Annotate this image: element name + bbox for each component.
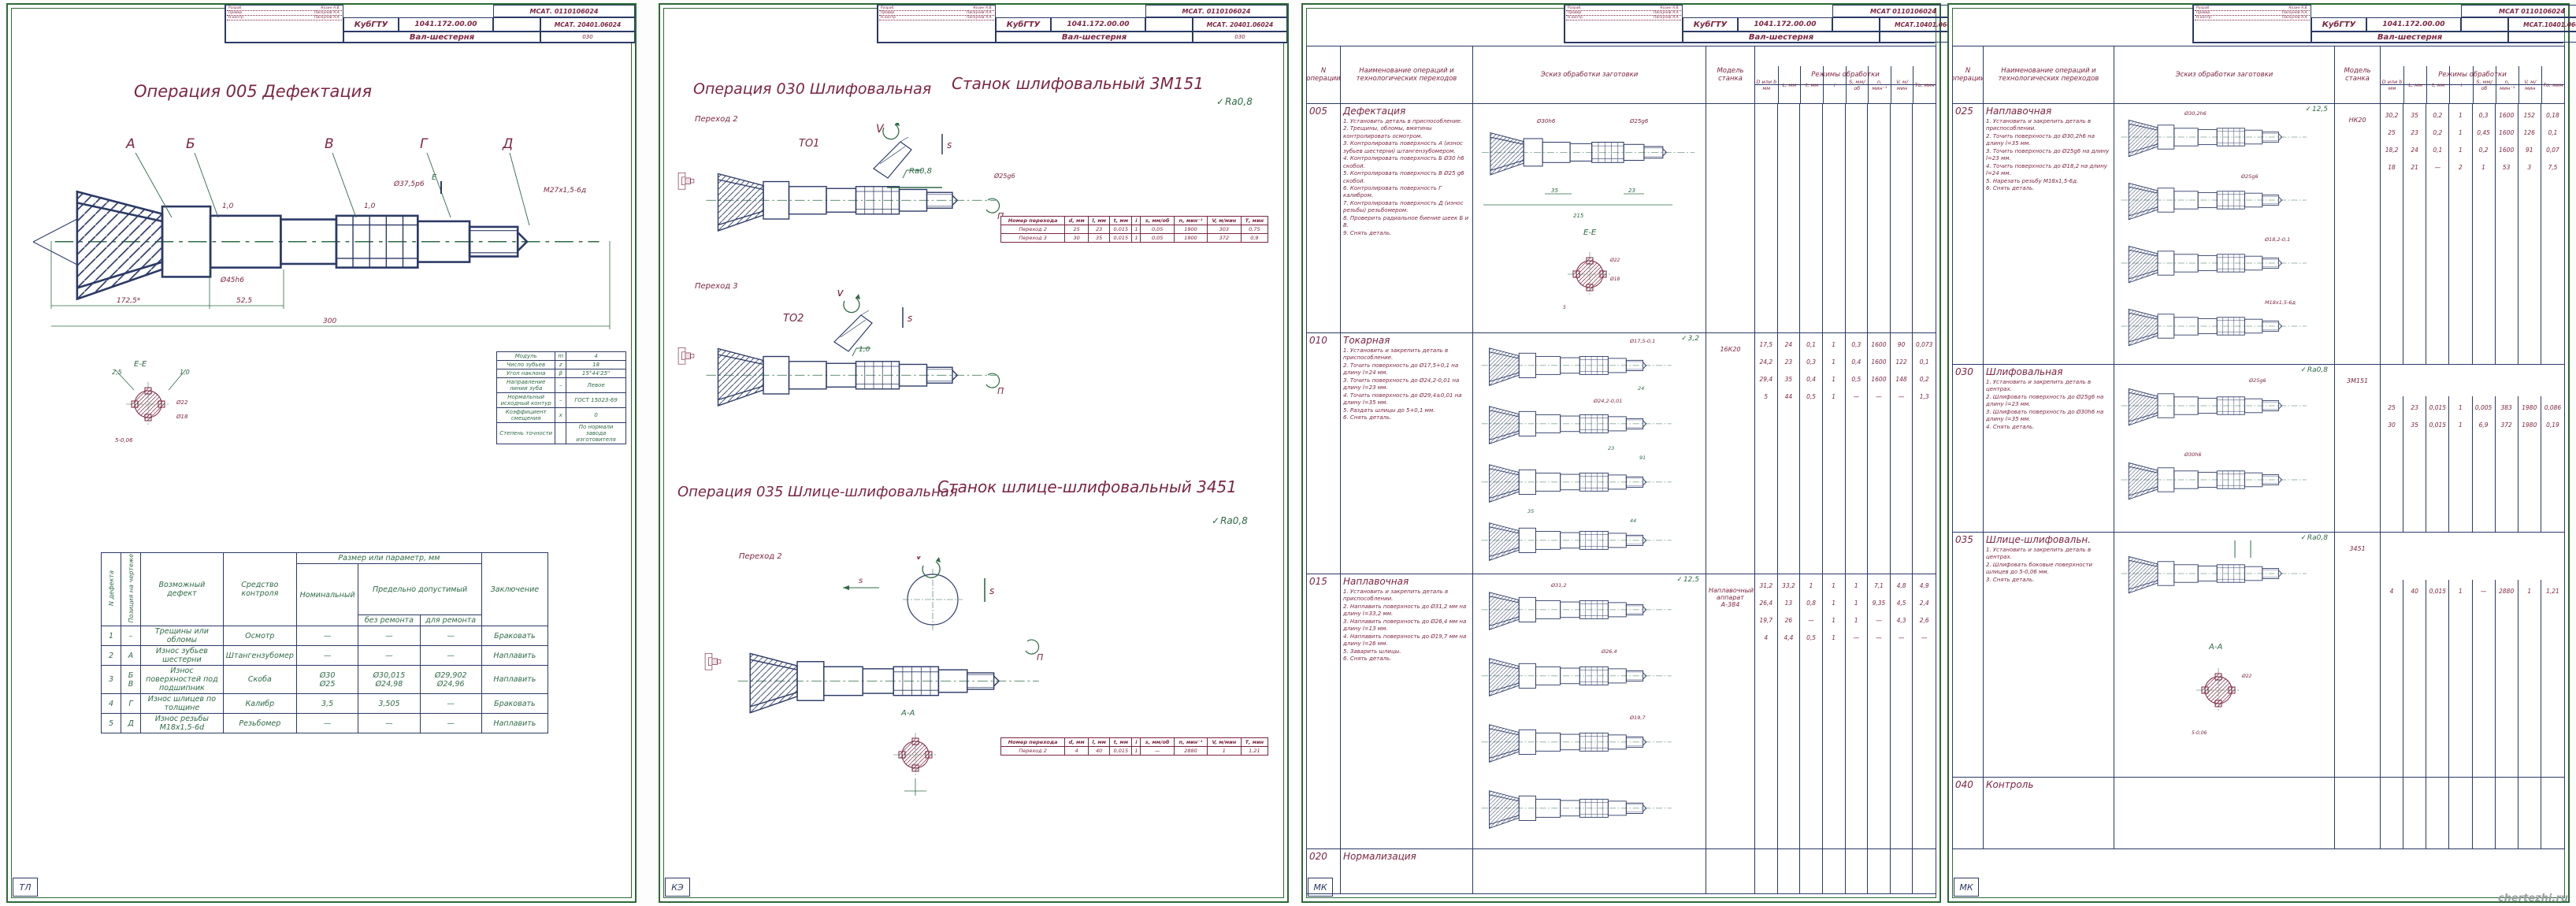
- mode-column: [1755, 849, 1778, 893]
- svg-text:Ø30h6: Ø30h6: [2184, 451, 2202, 458]
- table-row: Переход 225230,01510,0519003030,75: [1001, 225, 1268, 234]
- op-machine-model: [2335, 778, 2381, 848]
- table-cell: Резьбомер: [223, 714, 296, 733]
- table-cell: Штангензубомер: [223, 646, 296, 666]
- sheet3-title-block: Разраб.Козин А.В. Провер.Пискунов А.А. Н…: [1564, 5, 1935, 43]
- op-number: 030: [1952, 365, 1984, 532]
- mode-column: [2518, 778, 2541, 848]
- mode-column: —: [2473, 580, 2496, 777]
- mode-column: 33,213264,4: [1778, 574, 1801, 848]
- svg-text:44: 44: [1630, 518, 1636, 524]
- operation-005-title: Операция 005 Дефектация: [134, 82, 372, 101]
- mode-value: 1: [1823, 617, 1845, 634]
- drawing-number: 1041.172.00.00: [2366, 17, 2461, 32]
- table-cell: Износ зубьев шестерни: [141, 646, 224, 666]
- table-row: Модульm4: [497, 352, 626, 361]
- signature-grid: Разраб.Козин А.В. Провер.Пискунов А.А. Н…: [225, 5, 343, 43]
- section-ee-label: Е-Е: [134, 360, 147, 369]
- route-table-header: N операции Наименование операций и техно…: [1952, 46, 2565, 104]
- mode-value: 31,2: [1755, 582, 1777, 600]
- mode-column: 1: [2518, 580, 2541, 777]
- mode-value: 30,2: [2381, 112, 2403, 129]
- table-cell: 0,015: [1110, 234, 1132, 243]
- page-code: 030: [1193, 32, 1287, 43]
- op-description: Наплавочная 1. Установить и закрепить де…: [1984, 104, 2114, 364]
- section-aa-label: А-А: [901, 709, 915, 718]
- mode-value: 7,5: [2541, 164, 2564, 181]
- machine-030-title: Станок шлифовальный 3М151: [952, 74, 1204, 93]
- table-cell: Трещины или обломы: [141, 626, 224, 646]
- table-cell: 25: [1065, 225, 1089, 234]
- mode-value: 126: [2518, 129, 2541, 147]
- op-machine-model: [1706, 849, 1755, 893]
- route-row-005: 005 Дефектация 1. Установить деталь в пр…: [1306, 104, 1936, 333]
- route-card-2: Разраб.Козин А.В. Провер.Пискунов А.А. Н…: [1947, 3, 2570, 903]
- mode-column: 1,21: [2541, 580, 2564, 777]
- mode-value: 4: [1755, 634, 1777, 652]
- regimes-table-035: Номер переходаd, мм l, ммt, мм is, мм/об…: [1000, 737, 1268, 756]
- mode-value: 2,6: [1913, 617, 1936, 634]
- op-number: 040: [1952, 778, 1984, 848]
- mode-value: 1600: [2496, 112, 2518, 129]
- mode-value: 33,2: [1778, 582, 1800, 600]
- op-sketch: Ra0,8 Ø25g6 Ø30h6: [2114, 365, 2335, 532]
- mode-value: 40: [2403, 588, 2426, 605]
- table-cell: Нормальный исходный контур: [497, 393, 555, 408]
- table-row: Переход 24400,0151—288011,21: [1001, 747, 1268, 756]
- mode-value: 1980: [2518, 404, 2541, 421]
- op-modes: 253023350,0150,015110,0056,9383372198019…: [2381, 365, 2565, 532]
- mode-value: 19,7: [1755, 617, 1777, 634]
- route-row-020: 020 Нормализация: [1306, 849, 1936, 894]
- mode-value: 1: [1823, 358, 1845, 376]
- mode-value: 1,3: [1913, 393, 1936, 410]
- mode-column: [1778, 104, 1801, 332]
- svg-text:ТО2: ТО2: [783, 313, 804, 325]
- mode-value: 24: [2403, 147, 2426, 164]
- svg-text:А: А: [125, 136, 135, 152]
- op-machine-model: 3451: [2335, 533, 2381, 777]
- mode-value: 35: [2403, 421, 2426, 439]
- mode-value: —: [1891, 634, 1913, 652]
- table-cell: Осмотр: [223, 626, 296, 646]
- mode-column: 1111: [1823, 333, 1846, 574]
- table-row: Коэффициент смещенияx0: [497, 408, 626, 423]
- table-cell: Переход 2: [1001, 747, 1065, 756]
- mode-value: 1: [1823, 341, 1845, 358]
- mode-value: —: [1846, 393, 1868, 410]
- table-row: 5ДИзнос резьбы М18х1,5-6dРезьбомер———Нап…: [102, 714, 548, 733]
- mode-value: 1600: [2496, 129, 2518, 147]
- mode-column: 31,226,419,74: [1755, 574, 1778, 848]
- mode-column: [2449, 778, 2472, 848]
- operation-030-title: Операция 030 Шлифовальная: [693, 80, 931, 98]
- table-cell: —: [420, 694, 481, 714]
- mode-value: 0,45: [2473, 129, 2495, 147]
- svg-text:Ø22: Ø22: [2241, 674, 2252, 679]
- regimes-table-030: Номер переходаd, мм l, ммt, мм is, мм/об…: [1000, 216, 1268, 243]
- svg-text:s: s: [989, 585, 994, 596]
- op-machine-model: Наплавочный аппарат А-384: [1706, 574, 1755, 848]
- svg-text:Ø25g6: Ø25g6: [993, 172, 1015, 180]
- table-cell: —: [420, 646, 481, 666]
- mode-value: 90: [1891, 341, 1913, 358]
- mode-column: 19801980: [2518, 396, 2541, 532]
- op-sketch: Ra0,8 А-А Ø22 5-0,06: [2114, 533, 2335, 777]
- mode-column: 2530: [2381, 396, 2403, 532]
- table-cell: Наплавить: [481, 646, 547, 666]
- mode-column: 0,20,20,1—: [2426, 104, 2449, 364]
- table-cell: ГОСТ 15023-69: [566, 393, 626, 408]
- route-table-1: N операции Наименование операций и техно…: [1306, 46, 1936, 894]
- table-cell: Браковать: [481, 626, 547, 646]
- table-cell: Коэффициент смещения: [497, 408, 555, 423]
- svg-text:35: 35: [1551, 188, 1558, 194]
- mode-column: [2541, 778, 2564, 848]
- mode-value: 24,2: [1755, 358, 1777, 376]
- svg-text:П: П: [997, 386, 1004, 396]
- machine-035-title: Станок шлице-шлифовальный 3451: [937, 477, 1237, 496]
- op-machine-model: 16К20: [1706, 333, 1755, 574]
- mode-value: 0,3: [1846, 341, 1868, 358]
- op-sketch: [2114, 778, 2335, 848]
- mode-column: 0,180,10,077,5: [2541, 104, 2564, 364]
- gear-params-table: Модульm4Число зубьевz18Угол наклонаβ15°4…: [496, 351, 626, 444]
- table-cell: Наплавить: [481, 714, 547, 733]
- svg-text:215: 215: [1573, 213, 1584, 219]
- svg-text:Ø18: Ø18: [176, 414, 188, 420]
- defects-table: N дефекта Позиция на чертеже Возможный д…: [101, 552, 548, 733]
- mode-value: 18,2: [2381, 147, 2403, 164]
- doc-type-code: МК: [1308, 878, 1333, 897]
- svg-text:Ø25g6: Ø25g6: [1629, 118, 1649, 124]
- svg-text:Ø22: Ø22: [1609, 258, 1620, 263]
- svg-text:1,0: 1,0: [364, 202, 376, 210]
- mode-column: 160016001600—: [1868, 333, 1891, 574]
- op-machine-model: НК20: [2335, 104, 2381, 364]
- svg-text:23: 23: [1608, 445, 1614, 451]
- col-op: N операции: [1952, 46, 1984, 103]
- mode-value: 1600: [1868, 376, 1890, 393]
- mode-value: 0,18: [2541, 112, 2564, 129]
- table-cell: Браковать: [481, 694, 547, 714]
- route-row-035: 035 Шлице-шлифовальн. 1. Установить и за…: [1952, 533, 2565, 778]
- mode-value: 1: [1823, 376, 1845, 393]
- table-cell: 1: [1132, 234, 1141, 243]
- mode-column: 111—: [1846, 574, 1869, 848]
- mode-value: 0,2: [1913, 376, 1936, 393]
- op-sketch: 12,5 Ø31,2 Ø26,4 Ø19,7: [1473, 574, 1706, 848]
- table-cell: Направление линии зуба: [497, 378, 555, 393]
- op-sketch: 3,2 Ø17,5-0,1 Ø24,2-0,01 24 23 91 35: [1473, 333, 1706, 574]
- col-modes: Режимы обработки D или b мм L, ммt, мм i…: [1755, 46, 1936, 103]
- mode-value: 4,3: [1891, 617, 1913, 634]
- organization: КубГТУ: [1683, 17, 1738, 32]
- mode-column: 10,8—0,5: [1800, 574, 1823, 848]
- table-row: 1–Трещины или обломыОсмотр———Браковать: [102, 626, 548, 646]
- drawing-set-canvas: Разраб.Козин А.В. Провер.Пискунов А.А. Н…: [0, 0, 2576, 906]
- table-cell: —: [358, 714, 420, 733]
- svg-text:s: s: [908, 313, 912, 324]
- mode-column: [1913, 849, 1936, 893]
- svg-text:23: 23: [1628, 188, 1635, 194]
- mode-value: 1: [2449, 112, 2471, 129]
- mode-column: [1823, 104, 1846, 332]
- table-cell: 1: [1132, 747, 1141, 756]
- op-description: Шлифовальная 1. Установить и закрепить д…: [1984, 365, 2114, 532]
- doc-type-code: МК: [1954, 878, 1979, 897]
- mode-value: 0,1: [2426, 147, 2448, 164]
- table-cell: —: [358, 646, 420, 666]
- table-cell: 3: [102, 666, 121, 694]
- mode-value: 1: [2449, 404, 2471, 421]
- svg-text:Ø18,2-0,1: Ø18,2-0,1: [2264, 236, 2290, 243]
- signature-grid: Разраб.Козин А.В. Провер.Пискунов А.А. Н…: [878, 5, 996, 43]
- mode-column: 4: [2381, 580, 2403, 777]
- op-description: Дефектация 1. Установить деталь в приспо…: [1341, 104, 1473, 332]
- shaft-drawing: А Б В Г Д 1,0 1,0 Ø37,5р6 Ø45h6 М27х1,5-…: [24, 99, 622, 336]
- mode-value: 25: [2381, 404, 2403, 421]
- route-row-040: 040 Контроль: [1952, 778, 2565, 849]
- op-description: Наплавочная 1. Установить и закрепить де…: [1341, 574, 1473, 848]
- mode-value: 1: [1823, 393, 1845, 410]
- mode-column: [1800, 849, 1823, 893]
- mode-value: 17,5: [1755, 341, 1777, 358]
- table-cell: —: [358, 626, 420, 646]
- route-card-1: Разраб.Козин А.В. Провер.Пискунов А.А. Н…: [1301, 3, 1941, 903]
- mode-value: 44: [1778, 393, 1800, 410]
- table-cell: 372: [1207, 234, 1241, 243]
- svg-text:Ø19,7: Ø19,7: [1629, 715, 1646, 721]
- route-row-025: 025 Наплавочная 1. Установить и закрепит…: [1952, 104, 2565, 365]
- mode-column: 1111: [1823, 574, 1846, 848]
- mode-column: 4,84,54,3—: [1891, 574, 1913, 848]
- operation-035-title: Операция 035 Шлице-шлифовальная: [677, 484, 958, 500]
- mode-column: 0,0150,015: [2426, 396, 2449, 532]
- mode-value: 1600: [2496, 147, 2518, 164]
- mode-column: 0,30,450,21: [2473, 104, 2496, 364]
- mode-value: 0,5: [1800, 393, 1822, 410]
- mode-value: 25: [2381, 129, 2403, 147]
- col-modes: Режимы обработки D или b мм L, ммt, мм i…: [2381, 46, 2565, 103]
- table-cell: Модуль: [497, 352, 555, 361]
- table-cell: Наплавить: [481, 666, 547, 694]
- op-machine-model: 3М151: [2335, 365, 2381, 532]
- mode-column: [1913, 104, 1936, 332]
- table-cell: А: [121, 646, 141, 666]
- table-cell: 2880: [1175, 747, 1208, 756]
- mode-column: [2381, 778, 2403, 848]
- mode-column: [1823, 849, 1846, 893]
- mode-column: 0,015: [2426, 580, 2449, 777]
- table-cell: m: [555, 352, 566, 361]
- op-description: Нормализация: [1341, 849, 1473, 893]
- table-cell: 1900: [1175, 225, 1208, 234]
- mode-value: 1,21: [2541, 588, 2564, 605]
- signature-grid: Разраб.Козин А.В. Провер.Пискунов А.А. Н…: [2193, 5, 2311, 43]
- mode-value: 4: [2381, 588, 2403, 605]
- table-cell: Б В: [121, 666, 141, 694]
- table-cell: –: [555, 378, 566, 393]
- table-cell: —: [1141, 747, 1175, 756]
- mode-column: 17,524,229,45: [1755, 333, 1778, 574]
- svg-text:Б: Б: [186, 136, 195, 152]
- mode-column: 383372: [2496, 396, 2518, 532]
- mode-value: 1: [1800, 582, 1822, 600]
- table-cell: Износ поверхностей под подшипник: [141, 666, 224, 694]
- mode-value: 18: [2381, 164, 2403, 181]
- mode-column: 35232421: [2403, 104, 2426, 364]
- mode-value: —: [1868, 617, 1890, 634]
- organization: КубГТУ: [2311, 17, 2366, 32]
- svg-text:1,0: 1,0: [859, 346, 870, 354]
- col-sketch: Эскиз обработки заготовки: [2114, 46, 2335, 103]
- table-cell: Угол наклона: [497, 369, 555, 378]
- mode-value: 26: [1778, 617, 1800, 634]
- table-cell: Ø30,015 Ø24,98: [358, 666, 420, 694]
- svg-text:Ø17,5-0,1: Ø17,5-0,1: [1629, 338, 1655, 344]
- mode-value: 0,5: [1800, 634, 1822, 652]
- table-cell: 5: [102, 714, 121, 733]
- op-machine-model: [1706, 104, 1755, 332]
- mode-column: [1846, 104, 1869, 332]
- mode-value: 122: [1891, 358, 1913, 376]
- table-cell: 0,015: [1110, 747, 1132, 756]
- table-cell: Ø29,902 Ø24,96: [420, 666, 481, 694]
- mode-value: 35: [1778, 376, 1800, 393]
- route-row-010: 010 Токарная 1. Установить и закрепить д…: [1306, 333, 1936, 574]
- op-modes: 17,524,229,45242335440,10,30,40,511110,3…: [1755, 333, 1936, 574]
- table-cell: Переход 3: [1001, 234, 1065, 243]
- table-cell: Д: [121, 714, 141, 733]
- doc-type-code: ТЛ: [13, 878, 38, 897]
- svg-text:Ø18: Ø18: [1609, 277, 1620, 282]
- mode-column: [1800, 104, 1823, 332]
- table-cell: Калибр: [223, 694, 296, 714]
- table-cell: Степень точности: [497, 423, 555, 444]
- mode-value: 2880: [2496, 588, 2518, 605]
- col-model: Модель станка: [2335, 46, 2381, 103]
- mode-value: 0,086: [2541, 404, 2564, 421]
- drawing-number: 1041.172.00.00: [399, 17, 493, 32]
- svg-text:Ø22: Ø22: [176, 399, 188, 406]
- table-cell: Число зубьев: [497, 361, 555, 369]
- mode-value: 0,3: [1800, 358, 1822, 376]
- mode-column: 11: [2449, 396, 2472, 532]
- svg-text:V: V: [837, 290, 845, 299]
- table-cell: –: [121, 626, 141, 646]
- mode-column: [1891, 104, 1913, 332]
- mode-value: 0,015: [2426, 588, 2448, 605]
- svg-text:172,5*: 172,5*: [117, 297, 141, 305]
- mode-value: 383: [2496, 404, 2518, 421]
- mode-column: 2880: [2496, 580, 2518, 777]
- mode-value: —: [2426, 164, 2448, 181]
- svg-text:91: 91: [1639, 455, 1646, 461]
- svg-text:Ø37,5р6: Ø37,5р6: [393, 180, 425, 188]
- svg-text:5-0,06: 5-0,06: [2192, 730, 2207, 736]
- table-row: 3Б ВИзнос поверхностей под подшипникСкоб…: [102, 666, 548, 694]
- table-row: Число зубьевz18: [497, 361, 626, 369]
- op-modes: [2381, 778, 2565, 848]
- sheet1-title-block: Разраб.Козин А.В. Провер.Пискунов А.А. Н…: [225, 5, 635, 43]
- table-cell: 2: [102, 646, 121, 666]
- table-cell: Ø30 Ø25: [296, 666, 358, 694]
- mode-column: 24233544: [1778, 333, 1801, 574]
- col-op: N операции: [1306, 46, 1341, 103]
- mode-value: 6,9: [2473, 421, 2495, 439]
- svg-text:Д: Д: [502, 136, 513, 152]
- part-name: Вал-шестерня: [2311, 32, 2508, 43]
- mode-value: 1: [1823, 634, 1845, 652]
- svg-text:Г: Г: [420, 136, 429, 152]
- mode-value: 0,1: [2541, 129, 2564, 147]
- mode-value: 0,5: [1846, 376, 1868, 393]
- op-number: 015: [1306, 574, 1341, 848]
- op-description: Токарная 1. Установить и закрепить детал…: [1341, 333, 1473, 574]
- svg-text:Ø45h6: Ø45h6: [220, 276, 244, 284]
- section-aa: А-А: [881, 714, 967, 804]
- table-cell: Износ шлицев по толщине: [141, 694, 224, 714]
- mode-value: 0,1: [1800, 341, 1822, 358]
- table-cell: —: [420, 626, 481, 646]
- doc-number-top: МСАТ. 0110106024: [493, 5, 635, 17]
- svg-text:Ø30h6: Ø30h6: [1536, 118, 1556, 124]
- mode-value: —: [1846, 634, 1868, 652]
- table-cell: 30: [1065, 234, 1089, 243]
- svg-text:2,5: 2,5: [112, 369, 122, 376]
- table-cell: Левое: [566, 378, 626, 393]
- table-cell: Переход 2: [1001, 225, 1065, 234]
- mode-value: 26,4: [1755, 600, 1777, 617]
- op-modes: [1755, 104, 1936, 332]
- table-cell: 0: [566, 408, 626, 423]
- mode-value: —: [2473, 588, 2495, 605]
- table-cell: 4: [566, 352, 626, 361]
- drawing-number: 1041.172.00.00: [1051, 17, 1145, 32]
- table-cell: β: [555, 369, 566, 378]
- mode-value: —: [1868, 393, 1890, 410]
- mode-value: 0,073: [1913, 341, 1936, 358]
- table-cell: —: [296, 714, 358, 733]
- table-cell: 4: [1065, 747, 1089, 756]
- svg-text:s: s: [947, 139, 952, 150]
- mode-value: —: [1800, 617, 1822, 634]
- table-row: Степень точностиПо нормали завода изгото…: [497, 423, 626, 444]
- svg-text:V: V: [876, 123, 885, 136]
- svg-text:5: 5: [1563, 305, 1566, 310]
- table-cell: —: [296, 646, 358, 666]
- route-row-015: 015 Наплавочная 1. Установить и закрепит…: [1306, 574, 1936, 849]
- mode-value: 30: [2381, 421, 2403, 439]
- mode-value: 1: [2449, 147, 2471, 164]
- mode-value: 0,2: [2473, 147, 2495, 164]
- table-row: 4ГИзнос шлицев по толщинеКалибр3,53,505—…: [102, 694, 548, 714]
- mode-value: 2: [2449, 164, 2471, 181]
- mode-value: 0,07: [2541, 147, 2564, 164]
- mode-value: 35: [2403, 112, 2426, 129]
- table-cell: 1900: [1175, 234, 1208, 243]
- mode-value: 1: [2518, 588, 2541, 605]
- table-cell: x: [555, 408, 566, 423]
- svg-text:Ø25g6: Ø25g6: [2240, 173, 2259, 180]
- doc-number: МСАТ. 20401.06024: [540, 17, 635, 32]
- mode-value: 7,1: [1868, 582, 1890, 600]
- mode-value: 24: [1778, 341, 1800, 358]
- svg-text:Ø25g6: Ø25g6: [2248, 377, 2266, 384]
- table-row: Направление линии зуба–Левое: [497, 378, 626, 393]
- op-modes: [1755, 849, 1936, 893]
